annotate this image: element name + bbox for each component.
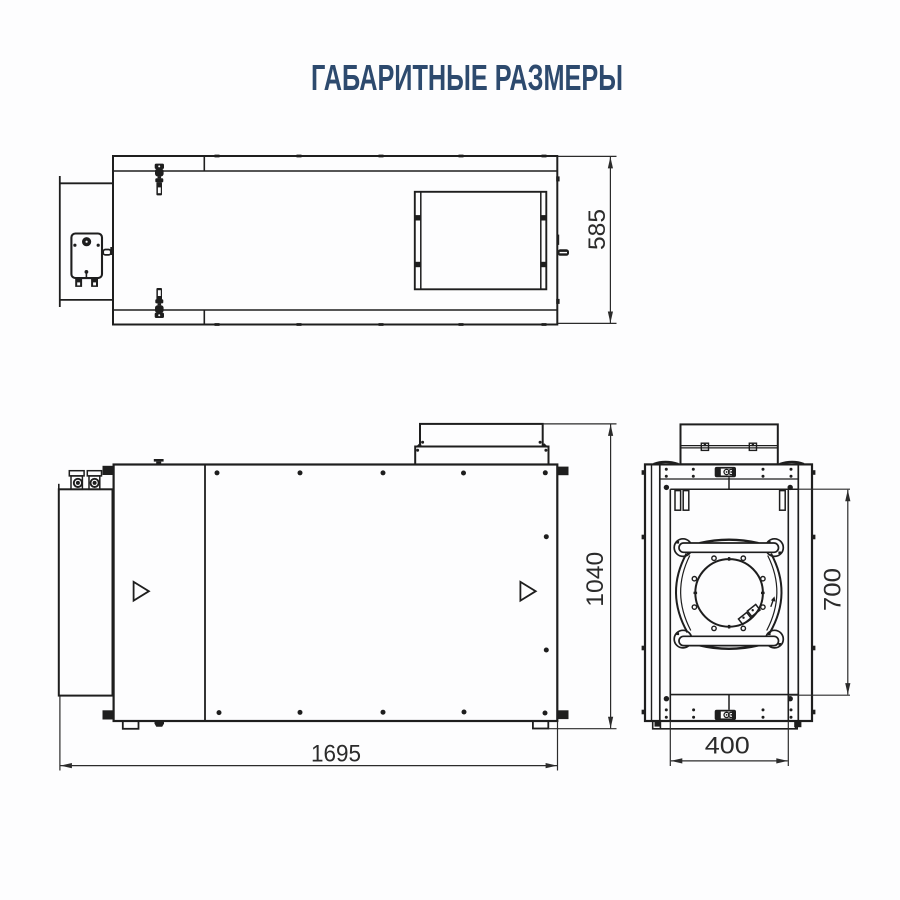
svg-text:585: 585 (584, 209, 611, 250)
svg-text:ГАБАРИТНЫЕ РАЗМЕРЫ: ГАБАРИТНЫЕ РАЗМЕРЫ (311, 57, 623, 98)
svg-text:1695: 1695 (311, 740, 361, 767)
svg-text:700: 700 (820, 568, 847, 611)
svg-text:1040: 1040 (582, 552, 609, 607)
svg-text:400: 400 (705, 732, 750, 759)
